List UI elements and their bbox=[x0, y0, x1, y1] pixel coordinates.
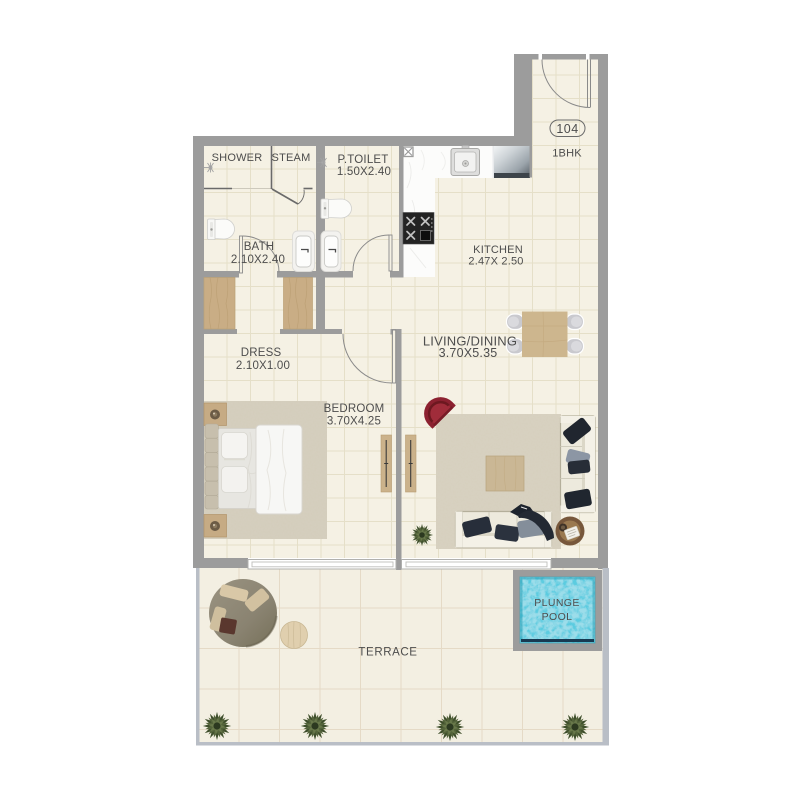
svg-text:2.10X1.00: 2.10X1.00 bbox=[236, 360, 290, 372]
svg-text:KITCHEN: KITCHEN bbox=[473, 244, 523, 256]
svg-text:DRESS: DRESS bbox=[241, 347, 282, 359]
svg-text:3.70X5.35: 3.70X5.35 bbox=[439, 346, 498, 360]
svg-text:104: 104 bbox=[556, 122, 578, 136]
svg-text:POOL: POOL bbox=[542, 611, 573, 623]
svg-text:STEAM: STEAM bbox=[272, 152, 311, 164]
svg-text:2.47X 2.50: 2.47X 2.50 bbox=[468, 256, 523, 268]
svg-text:TERRACE: TERRACE bbox=[358, 647, 417, 659]
svg-text:1BHK: 1BHK bbox=[552, 148, 582, 160]
svg-text:SHOWER: SHOWER bbox=[212, 152, 263, 164]
svg-text:3.70X4.25: 3.70X4.25 bbox=[327, 416, 381, 428]
svg-text:BEDROOM: BEDROOM bbox=[324, 403, 385, 415]
svg-text:PLUNGE: PLUNGE bbox=[534, 597, 580, 609]
svg-text:BATH: BATH bbox=[244, 241, 275, 253]
svg-text:1.50X2.40: 1.50X2.40 bbox=[337, 166, 391, 178]
svg-text:2.10X2.40: 2.10X2.40 bbox=[231, 254, 285, 266]
svg-text:P.TOILET: P.TOILET bbox=[337, 154, 388, 166]
